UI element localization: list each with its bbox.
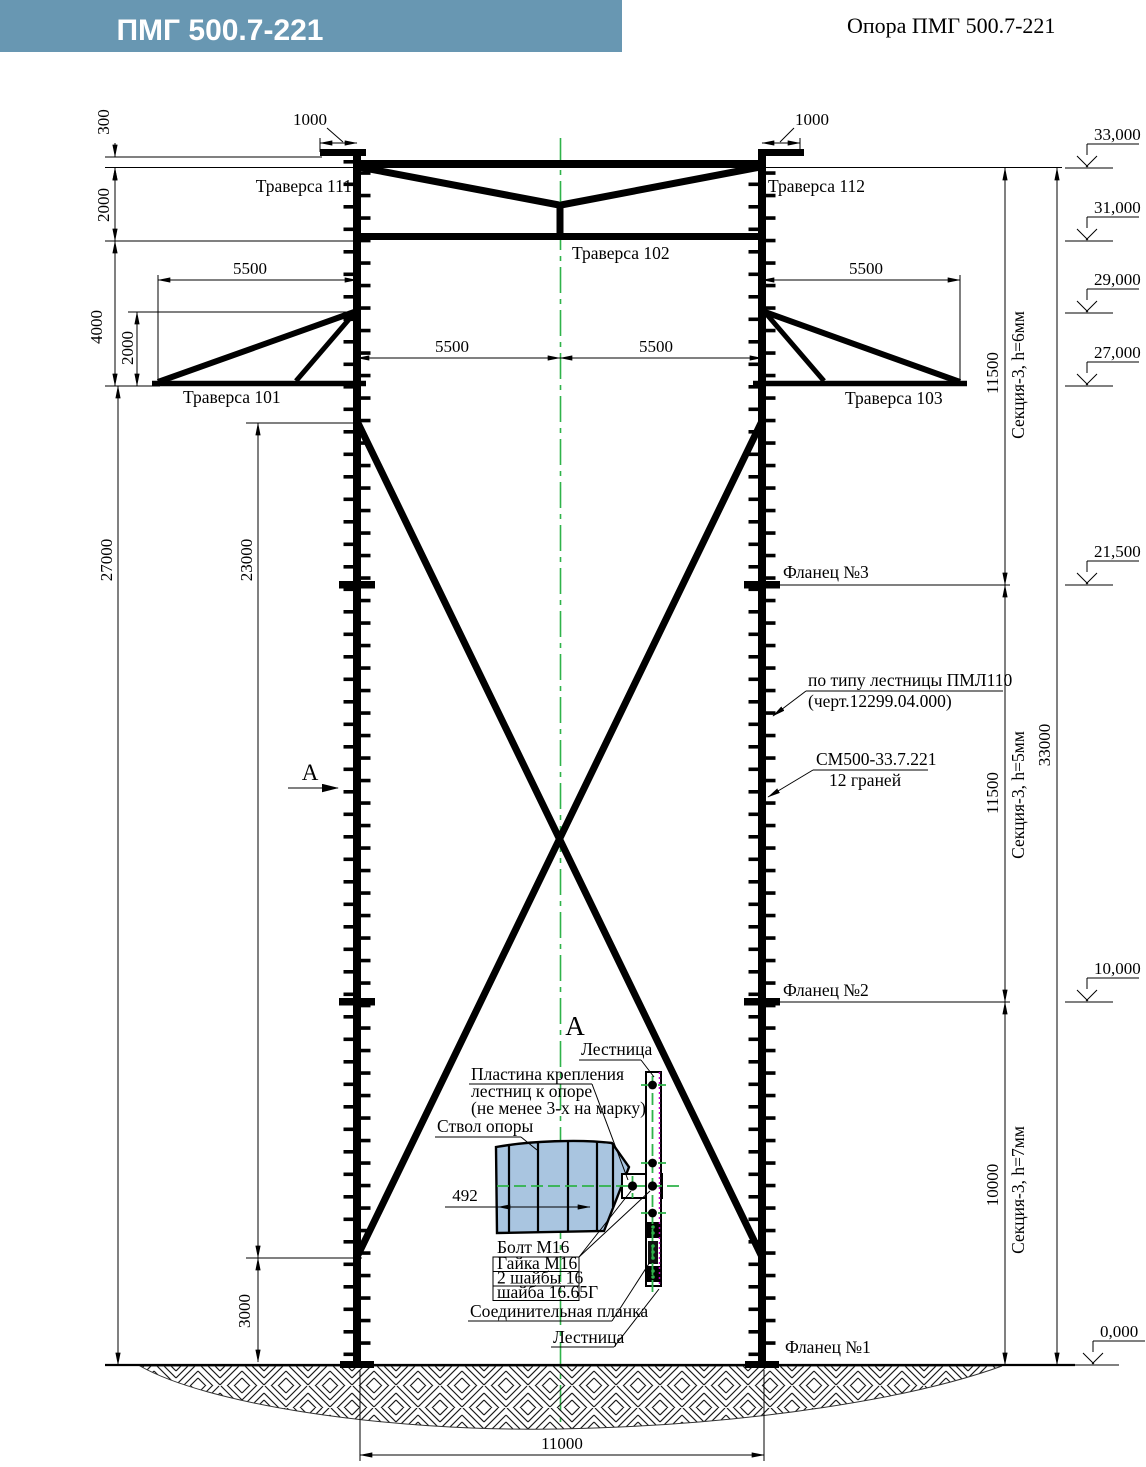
right-top-plate <box>758 149 804 156</box>
banner-title: ПМГ 500.7-221 <box>116 14 323 47</box>
traverse-101 <box>152 310 366 384</box>
section-a-letter: А <box>302 760 319 785</box>
elevation-29000-label: 29,000 <box>1094 270 1141 289</box>
dim-5500-right: 5500 <box>849 259 883 278</box>
dim-5500-mid-left: 5500 <box>435 337 469 356</box>
elevation-27000-label: 27,000 <box>1094 343 1141 362</box>
dim-492: 492 <box>452 1186 478 1205</box>
ladder-type-note: по типу лестницы ПМЛ110 (черт.12299.04.0… <box>773 670 1012 716</box>
ladder-top-label: Лестница <box>581 1039 652 1059</box>
dim-3000: 3000 <box>235 1294 254 1328</box>
dim-1000-left: 1000 <box>293 110 327 129</box>
dim-2000-top: 2000 <box>94 188 113 222</box>
drawing-page: ПМГ 500.7-221 Опора ПМГ 500.7-221 <box>0 0 1146 1467</box>
dim-11500-top: 11500 <box>983 352 1002 394</box>
traverse-103 <box>753 310 967 384</box>
traverse-103-label: Траверса 103 <box>845 388 943 408</box>
left-flange-3 <box>339 581 375 589</box>
dim-300: 300 <box>94 109 113 135</box>
left-flange-2 <box>339 998 375 1006</box>
elevation-31000: 31,000 <box>1065 198 1141 241</box>
washer-g-label: шайба 16.65Г <box>497 1282 598 1302</box>
right-base-plate <box>745 1361 779 1368</box>
plate-note-line3: (не менее 3-х на марку) <box>471 1098 646 1118</box>
elevation-27000: 27,000 <box>1065 343 1141 386</box>
dim-4000: 4000 <box>87 310 106 344</box>
elevation-33000: 33,000 <box>1065 125 1141 168</box>
flange-2-label: Фланец №2 <box>783 980 869 1000</box>
elevation-0000-label: 0,000 <box>1100 1322 1138 1341</box>
section-a-arrow: А <box>288 760 338 788</box>
dim-23000: 23000 <box>237 539 256 582</box>
dim-10000: 10000 <box>983 1164 1002 1207</box>
dim-33000: 33000 <box>1035 724 1054 767</box>
ground <box>105 1365 1075 1429</box>
dimensions-right: 1000 5500 11500 11500 10000 Секция-3, h=… <box>762 110 1057 1365</box>
traverse-112-label: Траверса 112 <box>768 176 865 196</box>
dim-1000-right: 1000 <box>795 110 829 129</box>
dim-5500-mid-right: 5500 <box>639 337 673 356</box>
elevation-marks: 33,000 31,000 29,000 27,000 21,500 10,00… <box>1065 125 1145 1365</box>
splice-bolts <box>651 1225 655 1279</box>
section-top-label: Секция-3, h=6мм <box>1008 311 1028 439</box>
elevation-21500-label: 21,500 <box>1094 542 1141 561</box>
elevation-0000: 0,000 <box>1071 1322 1145 1365</box>
section-middle-label: Секция-3, h=5мм <box>1008 731 1028 859</box>
splice-label: Соединительная планка <box>470 1301 648 1321</box>
flange-3-label: Фланец №3 <box>783 562 869 582</box>
detail-a: А <box>435 1011 680 1347</box>
top-beam <box>353 160 766 168</box>
elevation-31000-label: 31,000 <box>1094 198 1141 217</box>
ground-hatch <box>140 1366 1002 1429</box>
elevation-10000-label: 10,000 <box>1094 959 1141 978</box>
document-title: Опора ПМГ 500.7-221 <box>847 13 1055 38</box>
traverse-111-label: Траверса 111 <box>256 176 352 196</box>
v-brace-right <box>561 167 760 205</box>
engineering-drawing: ПМГ 500.7-221 Опора ПМГ 500.7-221 <box>0 0 1146 1467</box>
traverse-102-label: Траверса 102 <box>572 243 670 263</box>
ladder-note-line1: по типу лестницы ПМЛ110 <box>808 670 1012 690</box>
dim-2000-inner: 2000 <box>118 331 137 365</box>
dim-5500-left: 5500 <box>233 259 267 278</box>
v-brace-left <box>359 167 559 205</box>
shaft-label: Ствол опоры <box>437 1116 533 1136</box>
elevation-10000: 10,000 <box>1065 959 1141 1002</box>
elevation-21500: 21,500 <box>1065 542 1141 585</box>
elevation-33000-label: 33,000 <box>1094 125 1141 144</box>
shaft-note-line1: СМ500-33.7.221 <box>816 749 937 769</box>
elevation-29000: 29,000 <box>1065 270 1141 313</box>
section-bottom-label: Секция-3, h=7мм <box>1008 1126 1028 1254</box>
header: ПМГ 500.7-221 Опора ПМГ 500.7-221 <box>0 0 1055 52</box>
traverse-102-beam <box>353 233 766 240</box>
left-top-plate <box>320 149 366 156</box>
ladder-note-line2: (черт.12299.04.000) <box>808 691 952 711</box>
shaft-section-note: СМ500-33.7.221 12 граней <box>768 749 937 797</box>
dim-11500-mid: 11500 <box>983 772 1002 814</box>
dim-11000: 11000 <box>541 1434 583 1453</box>
left-base-plate <box>340 1361 374 1368</box>
dim-27000: 27000 <box>97 539 116 582</box>
traverse-101-label: Траверса 101 <box>183 387 281 407</box>
ladder-bottom-label: Лестница <box>553 1327 624 1347</box>
flange-1-label: Фланец №1 <box>785 1337 871 1357</box>
detail-a-title: А <box>565 1011 585 1041</box>
shaft-note-line2: 12 граней <box>829 770 901 790</box>
